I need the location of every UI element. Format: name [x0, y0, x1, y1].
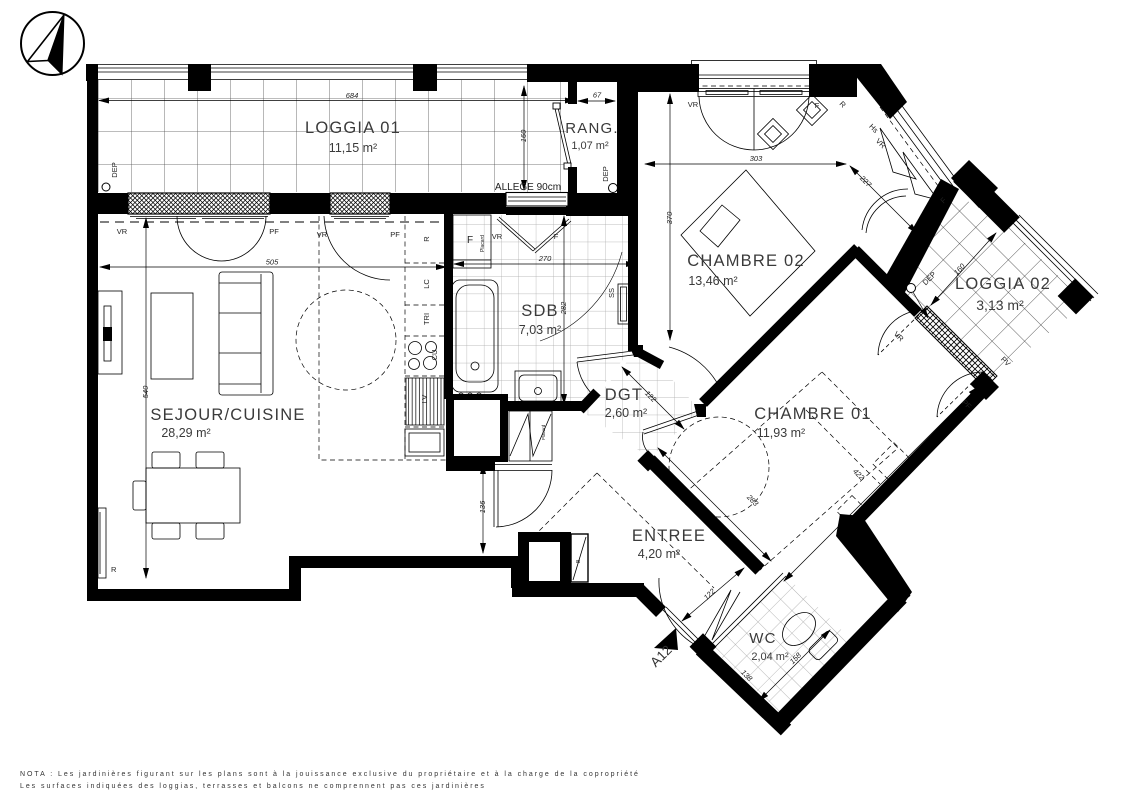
svg-text:F: F	[815, 101, 820, 110]
svg-text:4,20 m²: 4,20 m²	[638, 547, 680, 561]
svg-text:DEP: DEP	[601, 166, 610, 181]
svg-text:2,04 m²: 2,04 m²	[751, 651, 789, 663]
svg-text:ALLEGE 90cm: ALLEGE 90cm	[495, 182, 561, 193]
svg-text:LOGGIA 02: LOGGIA 02	[955, 275, 1051, 293]
svg-text:F: F	[554, 232, 559, 241]
svg-text:DEP: DEP	[110, 162, 119, 177]
svg-text:LC: LC	[422, 279, 431, 289]
svg-text:CHAMBRE 01: CHAMBRE 01	[754, 405, 871, 423]
svg-text:11,15 m²: 11,15 m²	[329, 141, 377, 155]
svg-text:282: 282	[559, 301, 568, 315]
svg-text:DGT: DGT	[605, 386, 643, 404]
svg-text:SDB: SDB	[521, 302, 559, 320]
svg-text:WC: WC	[749, 630, 776, 647]
svg-text:370: 370	[665, 211, 674, 224]
svg-text:R: R	[111, 565, 117, 574]
svg-text:RANG.: RANG.	[565, 120, 619, 137]
svg-text:1,07 m²: 1,07 m²	[571, 140, 609, 152]
svg-text:3,13 m²: 3,13 m²	[976, 297, 1024, 313]
svg-text:VR: VR	[117, 227, 128, 236]
svg-text:VR: VR	[688, 100, 699, 109]
svg-text:303: 303	[750, 154, 763, 163]
svg-text:684: 684	[346, 91, 359, 100]
svg-text:Placard: Placard	[480, 235, 486, 252]
svg-text:270: 270	[538, 254, 552, 263]
svg-text:Placard: Placard	[541, 424, 546, 440]
svg-text:R: R	[422, 236, 431, 242]
svg-text:F: F	[467, 235, 473, 246]
svg-text:ENTREE: ENTREE	[632, 527, 706, 545]
svg-text:TRI: TRI	[422, 313, 431, 325]
svg-text:CU: CU	[430, 350, 439, 361]
svg-text:160: 160	[519, 129, 528, 142]
svg-text:LV: LV	[420, 395, 429, 404]
svg-text:SS: SS	[607, 288, 616, 298]
svg-text:NOTA : Les jardinières figuran: NOTA : Les jardinières figurant sur les …	[20, 771, 640, 778]
svg-text:Les surfaces indiquées des log: Les surfaces indiquées des loggias, terr…	[20, 783, 486, 790]
svg-text:2,60 m²: 2,60 m²	[605, 406, 647, 420]
svg-text:PF: PF	[269, 227, 279, 236]
svg-text:7,03 m²: 7,03 m²	[519, 323, 561, 337]
svg-text:67: 67	[593, 91, 602, 100]
svg-text:11,93 m²: 11,93 m²	[757, 426, 805, 440]
svg-text:SEJOUR/CUISINE: SEJOUR/CUISINE	[150, 406, 305, 424]
svg-text:505: 505	[266, 258, 279, 267]
svg-text:LOGGIA 01: LOGGIA 01	[305, 119, 401, 137]
svg-text:540: 540	[141, 385, 150, 398]
svg-text:PF: PF	[390, 230, 400, 239]
svg-text:CHAMBRE 02: CHAMBRE 02	[687, 252, 804, 270]
svg-text:VR: VR	[492, 232, 503, 241]
svg-text:136: 136	[478, 500, 487, 513]
svg-text:VR: VR	[317, 230, 328, 239]
svg-text:13,46 m²: 13,46 m²	[688, 274, 737, 288]
svg-text:28,29 m²: 28,29 m²	[161, 426, 210, 440]
